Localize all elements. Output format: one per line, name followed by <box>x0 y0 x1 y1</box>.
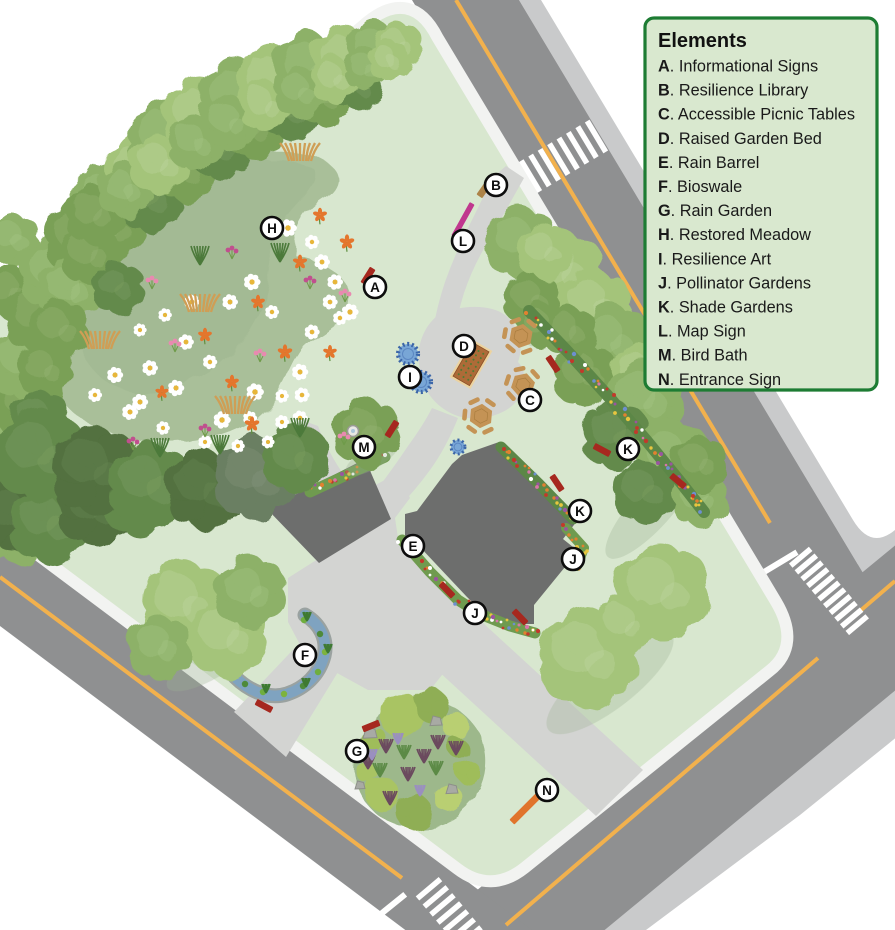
svg-text:H. Restored Meadow: H. Restored Meadow <box>658 226 811 244</box>
svg-text:I. Resilience Art: I. Resilience Art <box>658 250 772 268</box>
svg-text:J: J <box>471 606 479 621</box>
svg-text:J: J <box>569 552 577 567</box>
svg-text:L. Map Sign: L. Map Sign <box>658 323 746 341</box>
svg-text:A: A <box>370 280 380 295</box>
svg-text:M: M <box>358 440 369 455</box>
svg-text:D. Raised Garden Bed: D. Raised Garden Bed <box>658 130 822 148</box>
svg-text:D: D <box>459 339 469 354</box>
svg-text:I: I <box>408 370 412 385</box>
svg-text:K: K <box>623 442 633 457</box>
svg-text:F: F <box>301 648 309 663</box>
svg-text:N. Entrance Sign: N. Entrance Sign <box>658 371 781 389</box>
svg-text:E: E <box>408 539 417 554</box>
svg-text:L: L <box>459 234 467 249</box>
svg-text:E. Rain Barrel: E. Rain Barrel <box>658 154 759 172</box>
svg-text:J. Pollinator Gardens: J. Pollinator Gardens <box>658 274 811 292</box>
svg-text:K: K <box>575 504 585 519</box>
svg-text:B. Resilience Library: B. Resilience Library <box>658 82 809 100</box>
svg-text:H: H <box>267 221 277 236</box>
svg-text:N: N <box>542 783 552 798</box>
svg-text:F. Bioswale: F. Bioswale <box>658 178 742 196</box>
svg-text:C. Accessible Picnic Tables: C. Accessible Picnic Tables <box>658 106 855 124</box>
svg-text:C: C <box>525 393 535 408</box>
svg-text:G: G <box>352 744 363 759</box>
svg-text:B: B <box>491 178 501 193</box>
svg-text:G. Rain Garden: G. Rain Garden <box>658 202 772 220</box>
svg-text:A. Informational Signs: A. Informational Signs <box>658 58 818 76</box>
svg-text:K. Shade Gardens: K. Shade Gardens <box>658 299 793 317</box>
svg-text:M. Bird Bath: M. Bird Bath <box>658 347 748 365</box>
svg-text:Elements: Elements <box>658 30 747 52</box>
